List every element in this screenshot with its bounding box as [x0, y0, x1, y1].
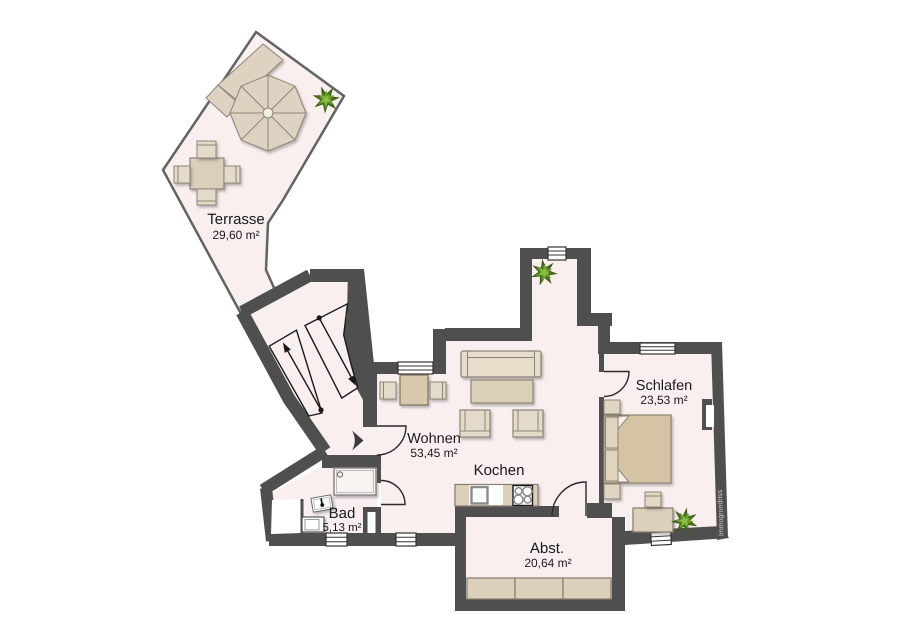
svg-text:Bad: Bad	[329, 505, 356, 522]
svg-text:Schlafen: Schlafen	[636, 378, 692, 394]
svg-text:Kochen: Kochen	[474, 462, 525, 479]
svg-text:Abst.: Abst.	[530, 540, 564, 557]
svg-text:23,53 m²: 23,53 m²	[640, 393, 687, 407]
svg-text:29,60 m²: 29,60 m²	[212, 228, 259, 242]
svg-text:Wohnen: Wohnen	[407, 431, 461, 447]
svg-text:5,13 m²: 5,13 m²	[323, 522, 362, 534]
svg-text:20,64 m²: 20,64 m²	[524, 556, 571, 570]
svg-text:53,45 m²: 53,45 m²	[410, 446, 457, 460]
svg-text:Immogrundriss: Immogrundriss	[716, 489, 726, 536]
svg-text:Terrasse: Terrasse	[207, 211, 265, 228]
